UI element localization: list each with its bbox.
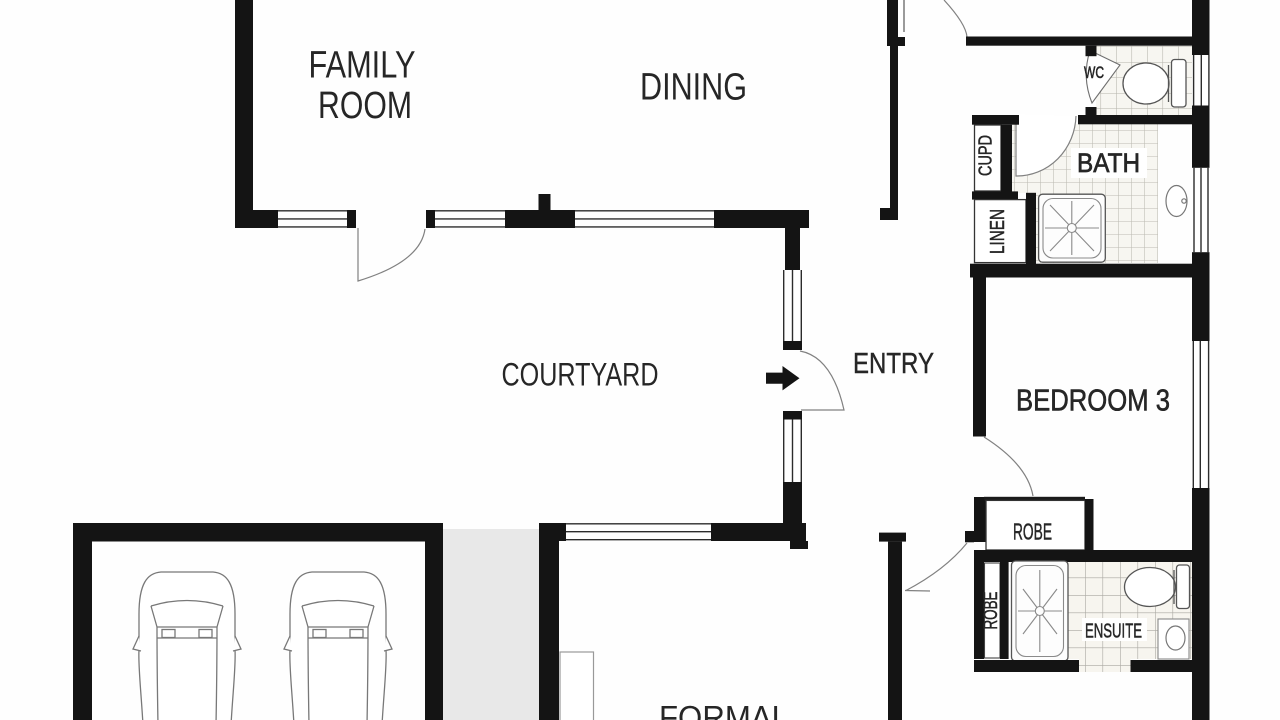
svg-text:COURTYARD: COURTYARD (502, 357, 659, 393)
svg-text:DINING: DINING (640, 67, 747, 109)
svg-text:CUPD: CUPD (976, 135, 996, 176)
svg-text:ROOM: ROOM (318, 85, 412, 127)
svg-text:ROBE: ROBE (981, 592, 1002, 630)
svg-text:FAMILY: FAMILY (309, 45, 416, 87)
svg-text:ROBE: ROBE (1013, 518, 1052, 544)
svg-text:LINEN: LINEN (987, 209, 1009, 254)
svg-text:ENTRY: ENTRY (853, 348, 934, 380)
svg-text:BATH: BATH (1077, 148, 1140, 178)
svg-text:FORMAL: FORMAL (659, 699, 789, 720)
svg-text:WC: WC (1084, 63, 1104, 82)
svg-text:BEDROOM 3: BEDROOM 3 (1016, 384, 1170, 418)
svg-text:ENSUITE: ENSUITE (1085, 621, 1142, 643)
